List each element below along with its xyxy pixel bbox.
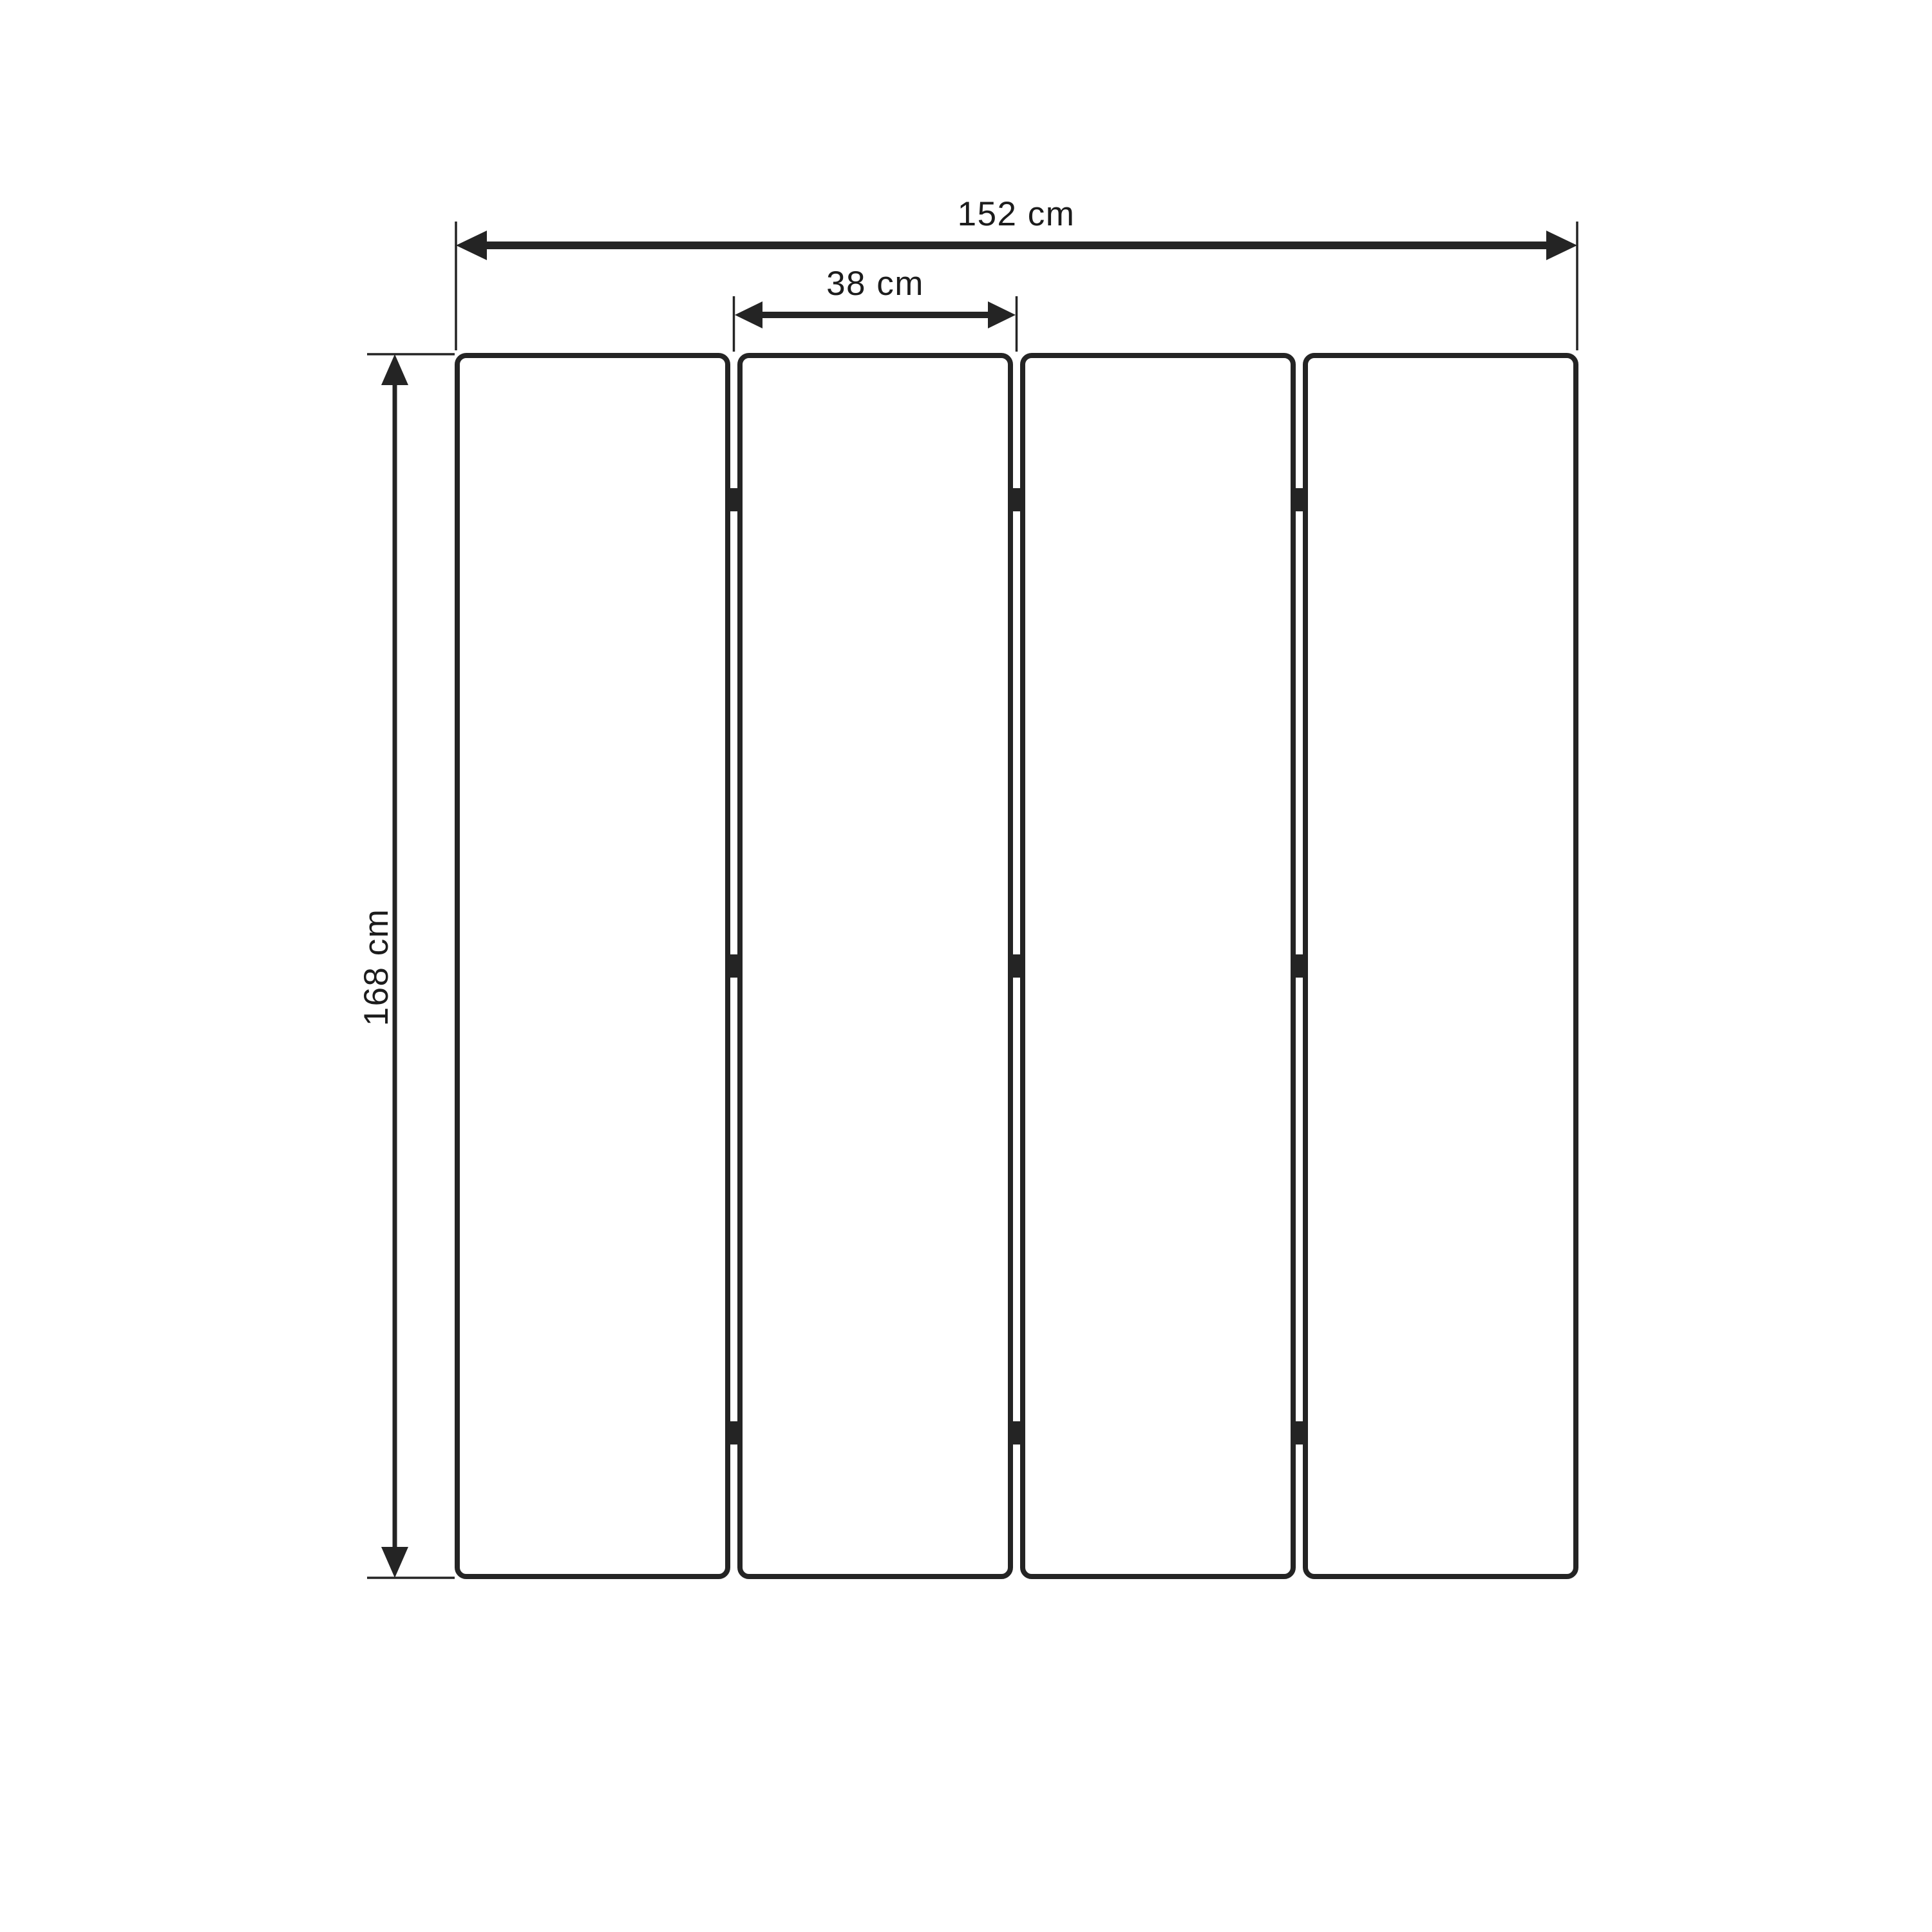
hinge-gap1-bottom [729,1421,739,1444]
hinge-gap2-top [1012,488,1022,511]
panel-4 [1305,355,1576,1577]
arrowhead-left-icon [735,301,762,328]
hinge-gap3-top [1294,488,1305,511]
arrowhead-left-icon [456,231,487,260]
total-width-label: 152 cm [958,195,1075,233]
panel-width-label: 38 cm [826,265,924,303]
arrowhead-up-icon [381,354,408,385]
hinge-gap3-bottom [1294,1421,1305,1444]
hinge-gap1-top [729,488,739,511]
hinge-gap2-middle [1012,954,1022,978]
panel-2 [740,355,1010,1577]
diagram-svg: 152 cm 38 cm 168 cm [0,0,1932,1932]
panel-1 [457,355,728,1577]
panel-3 [1023,355,1293,1577]
arrowhead-right-icon [988,301,1016,328]
dimension-panel-width: 38 cm [734,265,1017,352]
arrowhead-right-icon [1546,231,1577,260]
height-label: 168 cm [357,909,395,1027]
arrowhead-down-icon [381,1547,408,1578]
hinge-gap3-middle [1294,954,1305,978]
dimension-height: 168 cm [357,354,455,1578]
dimension-diagram: 152 cm 38 cm 168 cm [0,0,1932,1932]
hinge-gap1-middle [729,954,739,978]
hinge-gap2-bottom [1012,1421,1022,1444]
